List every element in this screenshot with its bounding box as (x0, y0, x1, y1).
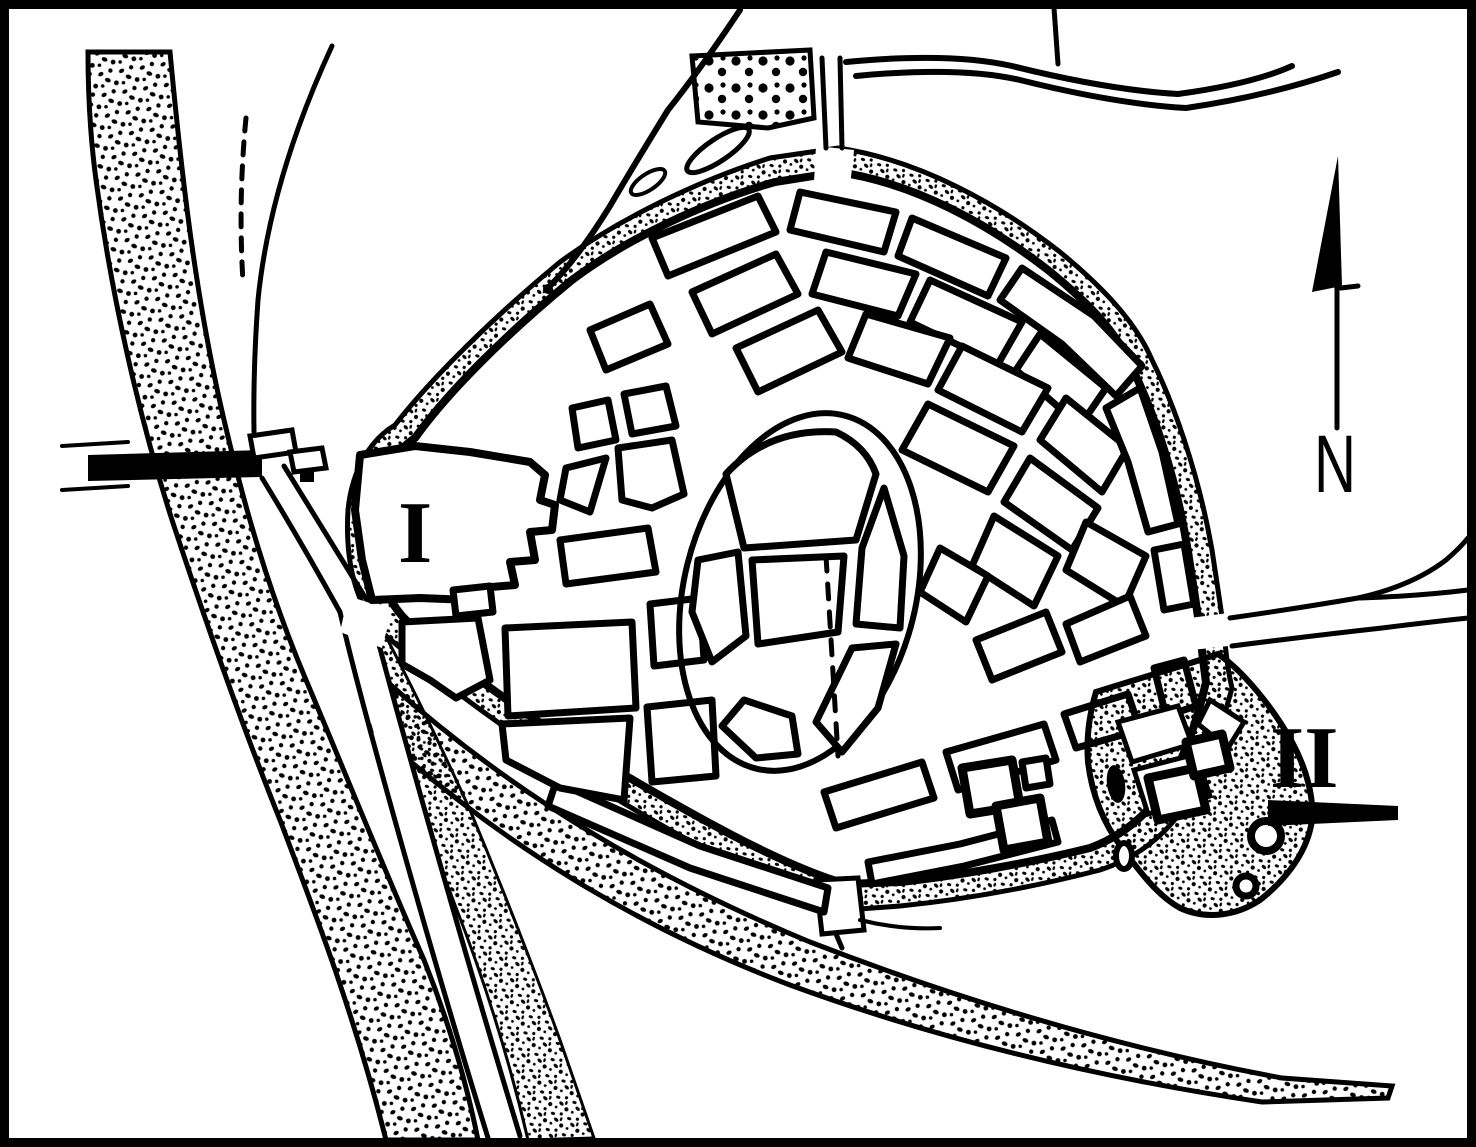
area-1-label: I (398, 485, 432, 582)
north-label: N (1314, 419, 1356, 510)
town-plan-svg: N I II (0, 0, 1476, 1147)
castle-round-tower-2 (1236, 876, 1256, 896)
suburb-block (692, 50, 814, 128)
town-plan-figure: N I II (0, 0, 1476, 1147)
castle-building-2 (1186, 734, 1230, 776)
north-gate (814, 146, 854, 186)
area-2-label: II (1270, 710, 1339, 807)
north-road-east-edge (840, 58, 842, 148)
castle-tower-small (1116, 843, 1132, 869)
gate-house-2 (290, 448, 326, 472)
